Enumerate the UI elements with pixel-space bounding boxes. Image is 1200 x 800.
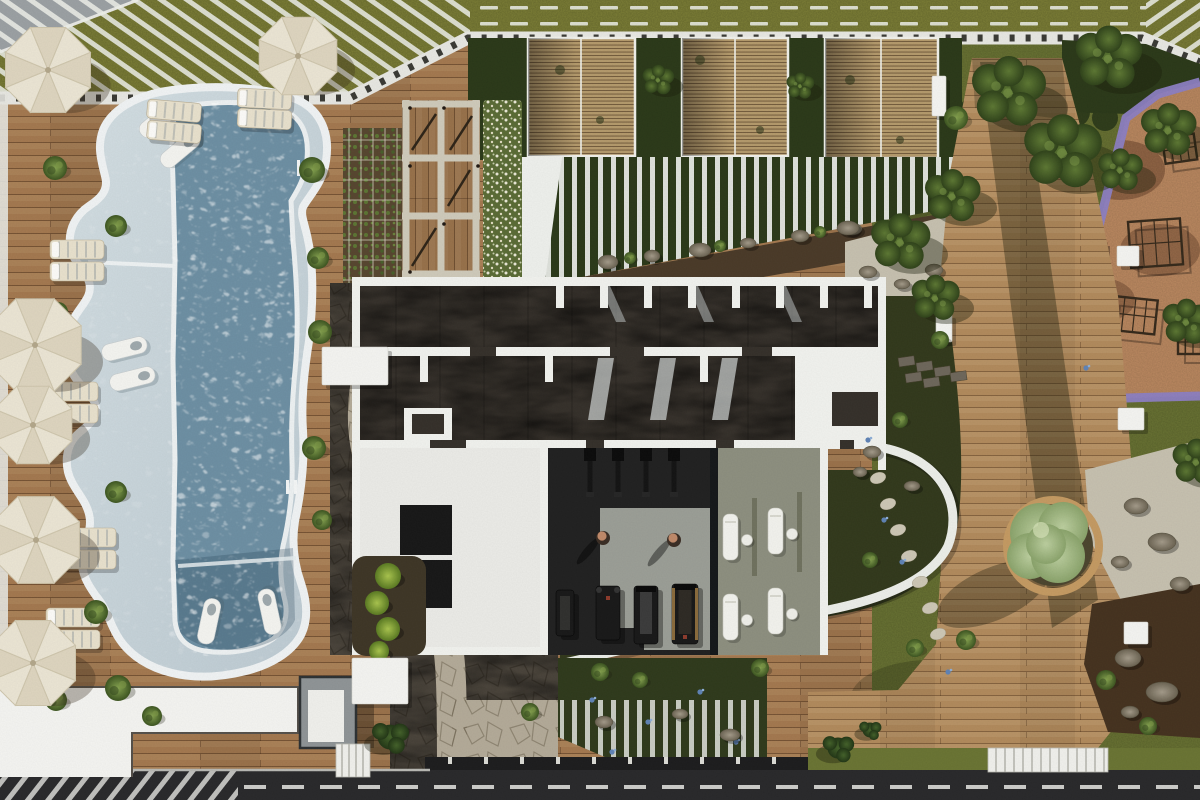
aerial-site-render [0, 0, 1200, 800]
film-grain [0, 0, 1200, 800]
site-plan-svg [0, 0, 1200, 800]
